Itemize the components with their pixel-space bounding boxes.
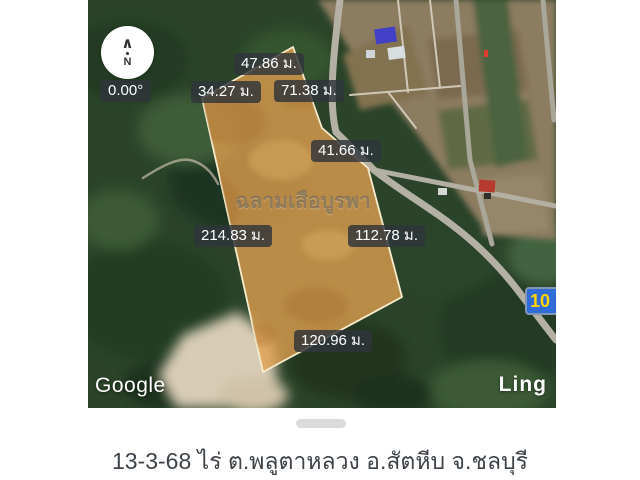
measurement-label-upper-left: 34.27 ม. — [191, 81, 261, 103]
compass-button[interactable]: ∧ N — [101, 26, 154, 79]
route-number-badge: 10 — [525, 287, 556, 315]
rotation-angle-badge: 0.00° — [100, 80, 151, 102]
measurement-label-left-side: 214.83 ม. — [194, 225, 272, 247]
compass-north-letter: N — [124, 57, 132, 68]
compass-dot-icon — [126, 52, 129, 55]
satellite-map[interactable]: ฉลามเสือบูรพา ∧ N 0.00° 47.86 ม. 34.27 ม… — [88, 0, 556, 408]
map-corner-label: Ling — [499, 373, 547, 397]
sheet-drag-handle[interactable] — [296, 419, 346, 428]
google-attribution-logo[interactable]: Google — [95, 374, 166, 398]
measurement-label-mid-right: 41.66 ม. — [311, 140, 381, 162]
measurement-label-upper-right: 71.38 ม. — [274, 80, 344, 102]
measurement-label-right-side: 112.78 ม. — [348, 225, 425, 247]
measurement-label-bottom: 120.96 ม. — [294, 330, 372, 352]
measurement-label-top: 47.86 ม. — [234, 53, 304, 75]
listing-caption: 13-3-68 ไร่ ต.พลูตาหลวง อ.สัตหีบ จ.ชลบุร… — [0, 444, 640, 480]
watermark-text: ฉลามเสือบูรพา — [203, 185, 403, 218]
screen: ฉลามเสือบูรพา ∧ N 0.00° 47.86 ม. 34.27 ม… — [0, 0, 640, 480]
compass-north-arrow-icon: ∧ — [121, 37, 133, 50]
